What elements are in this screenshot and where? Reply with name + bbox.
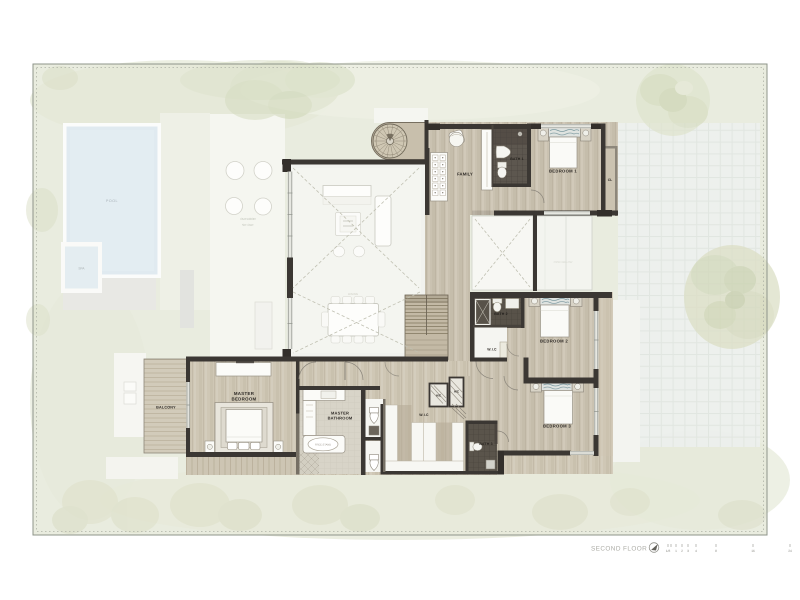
svg-text:CL: CL	[608, 178, 613, 182]
svg-text:FAMILY: FAMILY	[457, 172, 473, 177]
svg-text:BATHROOM: BATHROOM	[328, 416, 353, 421]
svg-text:POOL: POOL	[106, 199, 118, 203]
svg-text:MASTER: MASTER	[234, 391, 255, 396]
svg-text:BEDROOM 1: BEDROOM 1	[549, 169, 577, 174]
svg-text:BEDROOM: BEDROOM	[231, 397, 256, 402]
svg-text:BEDROOM 2: BEDROOM 2	[540, 339, 568, 344]
svg-text:W.I.C: W.I.C	[419, 413, 429, 417]
svg-text:DINING: DINING	[348, 292, 358, 296]
svg-text:SECOND FLOOR: SECOND FLOOR	[591, 546, 647, 553]
svg-text:BALCONY: BALCONY	[156, 406, 176, 410]
svg-text:16: 16	[751, 549, 755, 553]
svg-text:3: 3	[687, 549, 689, 553]
svg-text:8: 8	[715, 549, 717, 553]
svg-text:1: 1	[675, 549, 677, 553]
svg-text:FREE STAND: FREE STAND	[315, 444, 331, 447]
svg-text:2: 2	[681, 549, 683, 553]
svg-text:OUTDOOR: OUTDOOR	[240, 217, 256, 221]
svg-text:A/C: A/C	[454, 390, 460, 394]
svg-text:4: 4	[695, 549, 697, 553]
svg-text:OPEN BELOW: OPEN BELOW	[554, 260, 573, 264]
svg-text:BATH 2: BATH 2	[494, 312, 508, 316]
svg-text:BATH 1: BATH 1	[510, 157, 524, 161]
svg-text:BATH 3: BATH 3	[479, 442, 493, 446]
svg-text:A/C: A/C	[436, 394, 442, 398]
svg-text:SIT OUT: SIT OUT	[242, 223, 254, 227]
svg-text:BEDROOM 3: BEDROOM 3	[543, 424, 571, 429]
svg-text:SPA: SPA	[78, 267, 85, 271]
svg-text:W.I.C: W.I.C	[487, 348, 497, 352]
svg-text:1/8: 1/8	[666, 549, 671, 553]
svg-text:24: 24	[788, 549, 792, 553]
